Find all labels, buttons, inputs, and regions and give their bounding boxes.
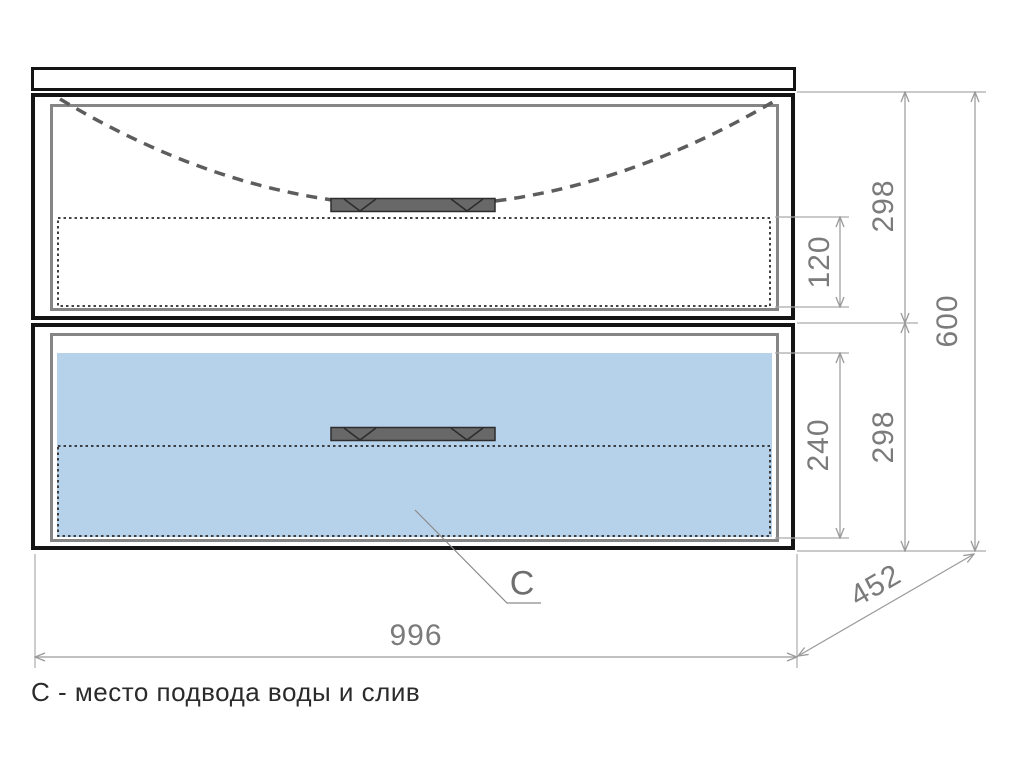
top-drawer-handle xyxy=(331,199,495,212)
dim-label-overall-width: 996 xyxy=(389,619,442,653)
countertop xyxy=(33,69,795,90)
leader-label-c: C xyxy=(510,565,535,604)
vanity-front-view-drawing xyxy=(0,0,1024,768)
dim-label-top-drawer-height: 298 xyxy=(867,179,901,232)
legend-caption: С - место подвода воды и слив xyxy=(31,677,420,708)
dim-label-bottom-drawer-height: 298 xyxy=(867,410,901,463)
bottom-drawer-handle xyxy=(331,428,495,441)
dim-label-bottom-internal: 240 xyxy=(802,418,836,471)
plumbing-zone xyxy=(57,353,772,537)
dim-label-top-internal: 120 xyxy=(803,235,837,288)
technical-drawing-page: 120 240 298 298 600 996 452 C С - место … xyxy=(0,0,1024,768)
dim-label-overall-height: 600 xyxy=(931,294,965,347)
